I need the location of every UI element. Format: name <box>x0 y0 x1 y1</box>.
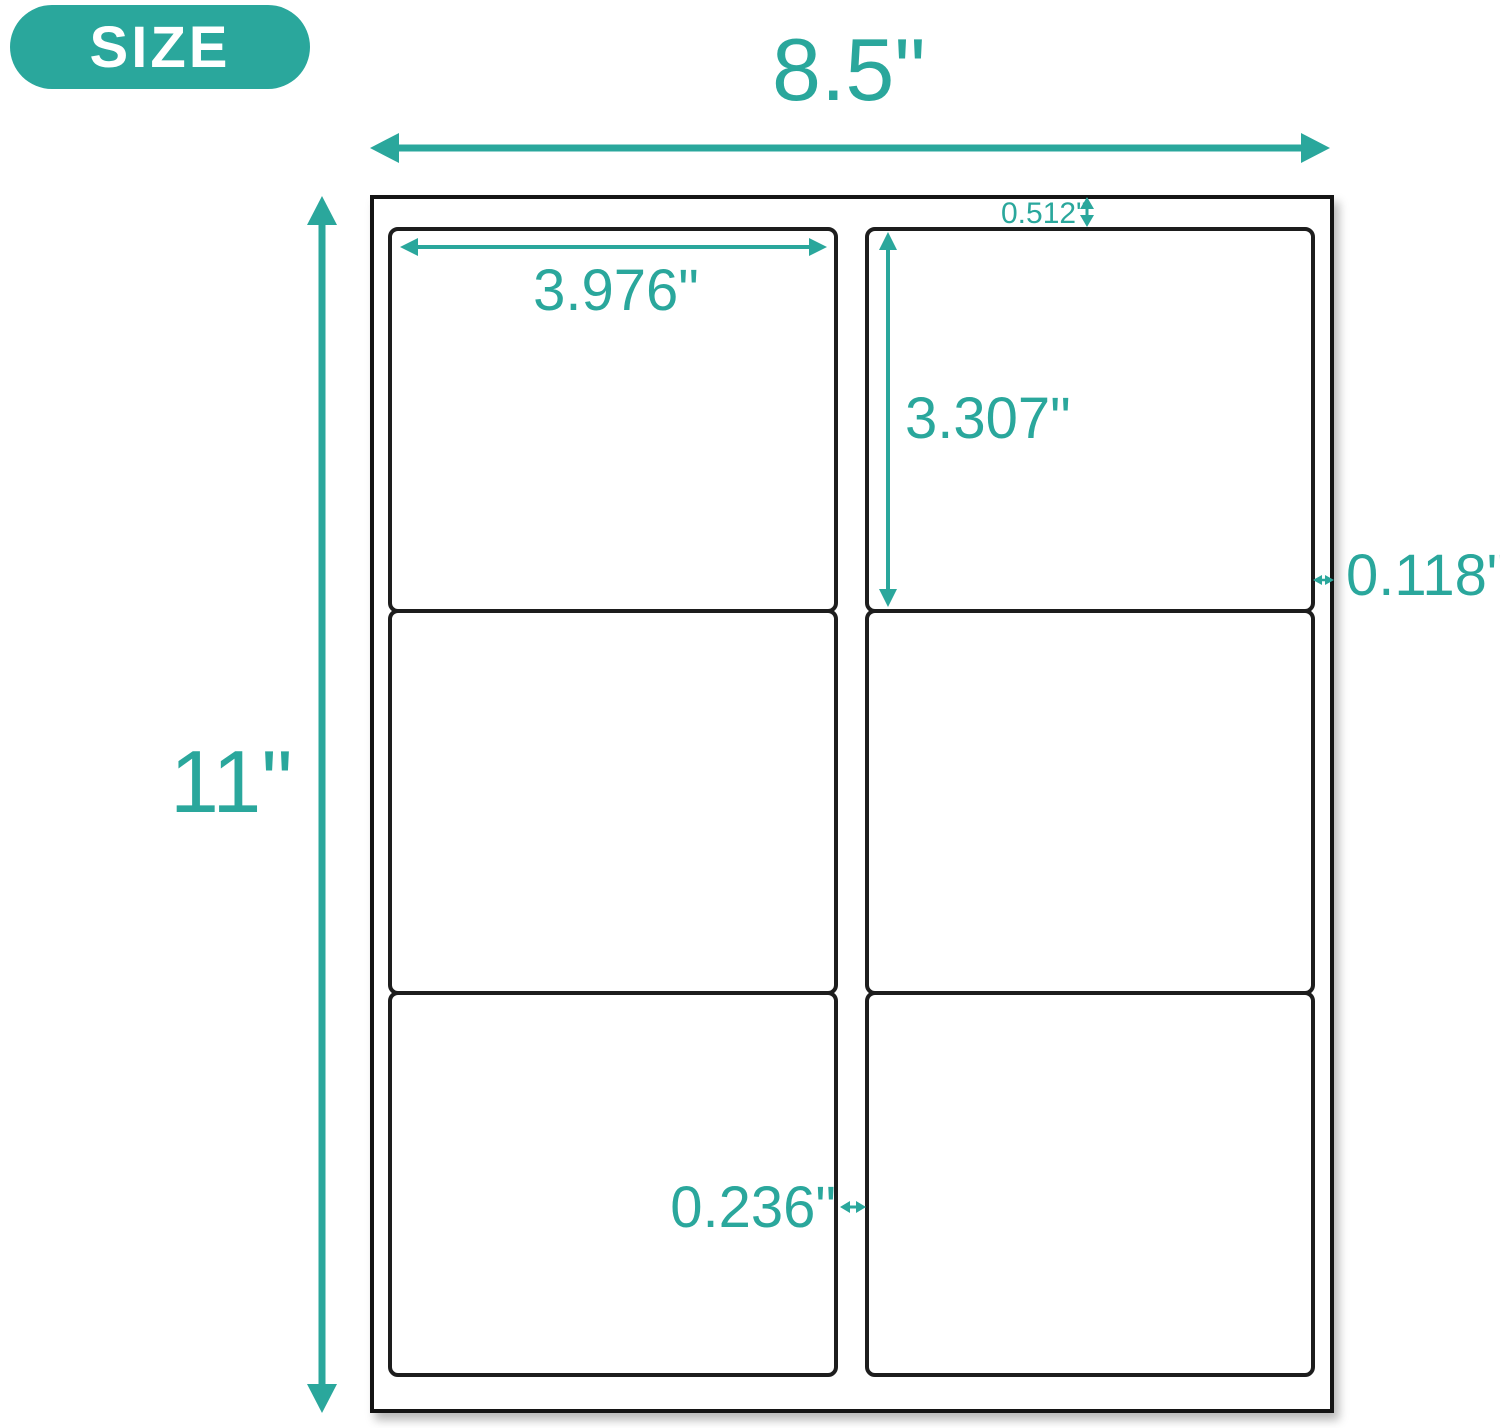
label-width-value: 3.976" <box>533 262 699 320</box>
sheet-height-arrow-icon <box>307 196 337 1413</box>
sheet-width-value: 8.5" <box>772 26 926 114</box>
label-cell-r2c2 <box>865 609 1315 995</box>
label-height-value: 3.307" <box>905 390 1071 448</box>
size-badge-label: SIZE <box>90 14 231 81</box>
top-margin-value: 0.512" <box>1001 199 1087 229</box>
label-cell-r3c2 <box>865 991 1315 1377</box>
sheet-width-arrow-icon <box>370 133 1330 163</box>
label-size-diagram: SIZE 8.5" 11" 3.976" 3.307" 0.512" 0.118… <box>0 0 1500 1428</box>
label-cell-r2c1 <box>388 609 838 995</box>
column-gap-value: 0.236" <box>670 1179 836 1237</box>
right-margin-value: 0.118" <box>1346 547 1500 605</box>
sheet-height-value: 11" <box>170 738 293 826</box>
size-badge: SIZE <box>10 5 310 89</box>
